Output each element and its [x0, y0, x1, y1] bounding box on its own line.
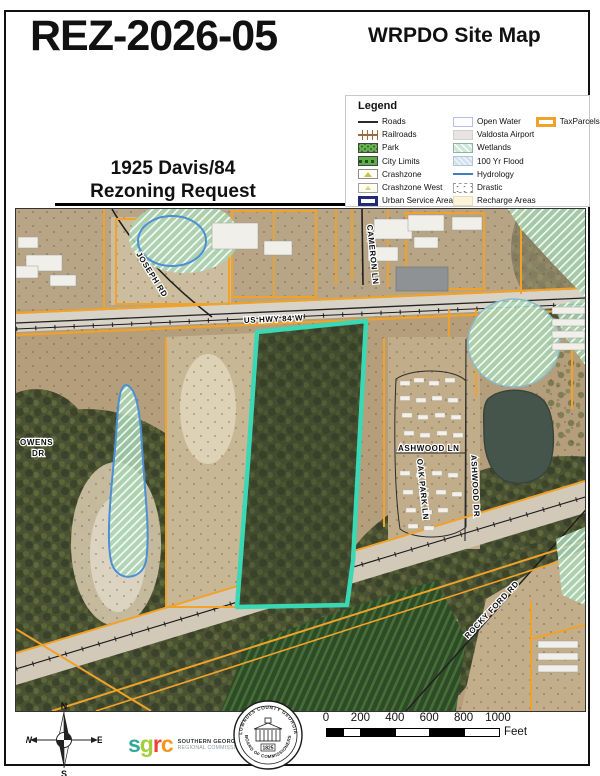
legend-item-crashzone-west: Crashzone West — [358, 181, 453, 194]
railroad-line-swatch — [358, 130, 378, 140]
compass-n-label: N — [61, 701, 68, 711]
drastic-swatch — [453, 183, 473, 193]
urban-service-area-swatch — [358, 196, 378, 206]
compass-s-label: S — [61, 769, 67, 776]
road-label-owens: OWENS — [20, 438, 53, 447]
legend-item-wetlands: Wetlands — [453, 141, 536, 154]
map-sheet: REZ-2026-05 WRPDO Site Map 1925 Davis/84… — [0, 0, 600, 776]
subtitle-line2: Rezoning Request — [58, 181, 288, 204]
legend-item-railroads: Railroads — [358, 128, 453, 141]
legend-item-hydrology: Hydrology — [453, 168, 536, 181]
airport-swatch — [453, 130, 473, 140]
recharge-swatch — [453, 196, 473, 206]
legend-item-park: Park — [358, 141, 453, 154]
taxparcels-swatch — [536, 117, 556, 127]
legend-item-urban-service-area: Urban Service Area — [358, 194, 453, 207]
park-swatch — [358, 143, 378, 153]
legend: Legend Roads Railroads Park City Limits … — [345, 95, 590, 207]
scale-unit-label: Feet — [504, 726, 527, 738]
pond — [484, 390, 554, 483]
sgrc-letter-r: r — [153, 731, 161, 757]
city-limits-swatch — [358, 156, 378, 166]
legend-item-open-water: Open Water — [453, 115, 536, 128]
hydrology-line-swatch — [453, 169, 473, 179]
scale-tick-200: 200 — [351, 712, 370, 724]
case-number: REZ-2026-05 — [30, 12, 277, 61]
crashzone-west-swatch — [358, 183, 378, 193]
page-title: WRPDO Site Map — [368, 24, 541, 48]
seal-year: 1825 — [262, 746, 273, 752]
compass-w-label: W — [26, 735, 33, 745]
scale-tick-800: 800 — [454, 712, 473, 724]
legend-item-taxparcels: TaxParcels — [536, 115, 600, 128]
legend-item-roads: Roads — [358, 115, 453, 128]
legend-item-recharge-areas: Recharge Areas — [453, 194, 536, 207]
scale-bar: 0 200 400 600 800 1000 Feet — [316, 712, 566, 756]
county-seal: LOWNDES COUNTY GEORGIA BOARD OF COMMISSI… — [232, 699, 304, 771]
wetlands-swatch — [453, 143, 473, 153]
subtitle-line1: 1925 Davis/84 — [58, 158, 288, 181]
roads-line-swatch — [358, 117, 378, 127]
compass-rose: N S E W — [26, 700, 102, 776]
scale-tick-1000: 1000 — [485, 712, 511, 724]
crashzone-swatch — [358, 169, 378, 179]
rezoning-subtitle: 1925 Davis/84 Rezoning Request — [58, 158, 288, 204]
aerial-map-canvas: JOSEPH RD US HWY 84 W CAMERON LN OWENS D… — [16, 209, 585, 711]
site-map: JOSEPH RD US HWY 84 W CAMERON LN OWENS D… — [15, 208, 586, 712]
scale-bar-segments — [326, 728, 500, 737]
road-label-owens-dr: DR — [32, 449, 45, 458]
scale-tick-400: 400 — [385, 712, 404, 724]
compass-e-label: E — [97, 735, 102, 745]
legend-item-city-limits: City Limits — [358, 155, 453, 168]
flood-swatch — [453, 156, 473, 166]
sgrc-letter-g: g — [140, 731, 153, 757]
open-water-swatch — [453, 117, 473, 127]
legend-title: Legend — [358, 100, 583, 112]
cameron-ln-road — [362, 209, 363, 285]
legend-item-100yr-flood: 100 Yr Flood — [453, 155, 536, 168]
scale-tick-600: 600 — [420, 712, 439, 724]
large-roof-building — [396, 267, 448, 291]
sgrc-letter-c: c — [161, 731, 173, 757]
scale-tick-0: 0 — [323, 712, 329, 724]
legend-item-drastic: Drastic — [453, 181, 536, 194]
legend-item-valdosta-airport: Valdosta Airport — [453, 128, 536, 141]
wetland-right-blob — [468, 299, 560, 387]
sgrc-letter-s: s — [128, 731, 140, 757]
legend-item-crashzone: Crashzone — [358, 168, 453, 181]
sgrc-logo: sgrc SOUTHERN GEORGIA REGIONAL COMMISSIO… — [128, 733, 243, 756]
road-label-ashwood-ln: ASHWOOD LN — [398, 444, 460, 453]
